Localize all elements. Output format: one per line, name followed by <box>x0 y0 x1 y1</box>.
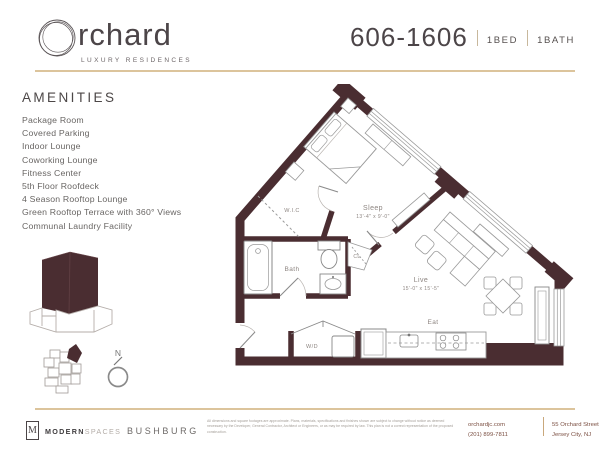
list-item: Package Room <box>22 114 222 127</box>
live-label: Live <box>414 277 428 284</box>
wd-label: W/D <box>306 344 318 350</box>
list-item: Green Rooftop Terrace with 360° Views <box>22 206 222 219</box>
stove <box>436 333 466 350</box>
header-divider <box>35 70 575 72</box>
separator <box>527 30 528 46</box>
cl-label: CL <box>353 254 360 260</box>
list-item: Coworking Lounge <box>22 154 222 167</box>
orchard-logo: rchard LUXURY RESIDENCES <box>34 13 234 65</box>
amenities-title: AMENITIES <box>22 90 222 105</box>
amenities-list: Package Room Covered Parking Indoor Loun… <box>22 114 222 233</box>
modernspaces-mark-icon: M <box>26 421 39 440</box>
logo-tagline: LUXURY RESIDENCES <box>81 57 192 64</box>
radiator-unit <box>535 287 549 344</box>
logo-wordmark: rchard <box>78 17 172 53</box>
modernspaces-light: SPACES <box>85 427 121 436</box>
list-item: 5th Floor Roofdeck <box>22 180 222 193</box>
list-item: Covered Parking <box>22 127 222 140</box>
contact-block: orchardjc.com (201) 899-7811 <box>468 420 508 441</box>
sleep-label: Sleep <box>363 205 383 212</box>
bath-count: 1BATH <box>537 35 575 46</box>
address-street: 55 Orchard Street <box>552 420 599 430</box>
kitchen <box>361 329 486 358</box>
live-dims: 15'-0" x 15'-5" <box>403 286 440 292</box>
legal-disclaimer: All dimensions and square footages are a… <box>207 419 455 435</box>
bathtub <box>244 241 272 294</box>
address-city: Jersey City, NJ <box>552 430 599 440</box>
footer-vertical-divider <box>543 417 544 436</box>
list-item: Fitness Center <box>22 167 222 180</box>
footer-divider <box>35 408 575 410</box>
bath-sink <box>320 274 346 294</box>
compass-needle <box>114 357 122 365</box>
website: orchardjc.com <box>468 420 508 430</box>
right-window <box>554 289 564 346</box>
list-item: Indoor Lounge <box>22 140 222 153</box>
list-item: Communal Laundry Facility <box>22 220 222 233</box>
bed-count: 1BED <box>487 35 518 46</box>
sleep-dims: 13'-4" x 9'-0" <box>356 214 390 220</box>
kitchen-sink <box>400 335 418 347</box>
bushburg-logo: BUSHBURG <box>127 426 199 436</box>
amenities-section: AMENITIES Package Room Covered Parking I… <box>22 90 222 233</box>
compass: N <box>100 345 136 393</box>
tower-3d <box>42 252 98 314</box>
modernspaces-logo: MODERNSPACES <box>45 427 121 436</box>
flyer-page: rchard LUXURY RESIDENCES 606-1606 1BED 1… <box>0 0 600 462</box>
eat-label: Eat <box>428 319 439 326</box>
orchard-o-icon <box>34 15 80 61</box>
compass-ring <box>109 368 128 387</box>
compass-north-label: N <box>115 348 121 358</box>
unit-number: 606-1606 <box>350 22 468 53</box>
floor-plan: Sleep 13'-4" x 9'-0" Live 15'-0" x 15'-5… <box>228 84 580 406</box>
list-item: 4 Season Rooftop Lounge <box>22 193 222 206</box>
modernspaces-bold: MODERN <box>45 427 85 436</box>
phone: (201) 899-7811 <box>468 430 508 440</box>
refrigerator <box>361 329 386 358</box>
wic-label: W.I.C <box>284 208 299 214</box>
separator <box>477 30 478 46</box>
floor-key-plan <box>36 344 94 396</box>
address-block: 55 Orchard Street Jersey City, NJ <box>552 420 599 441</box>
bath-label: Bath <box>285 266 300 273</box>
dining-set <box>484 277 522 315</box>
unit-info: 606-1606 1BED 1BATH <box>350 22 575 53</box>
building-illustration <box>22 246 122 342</box>
